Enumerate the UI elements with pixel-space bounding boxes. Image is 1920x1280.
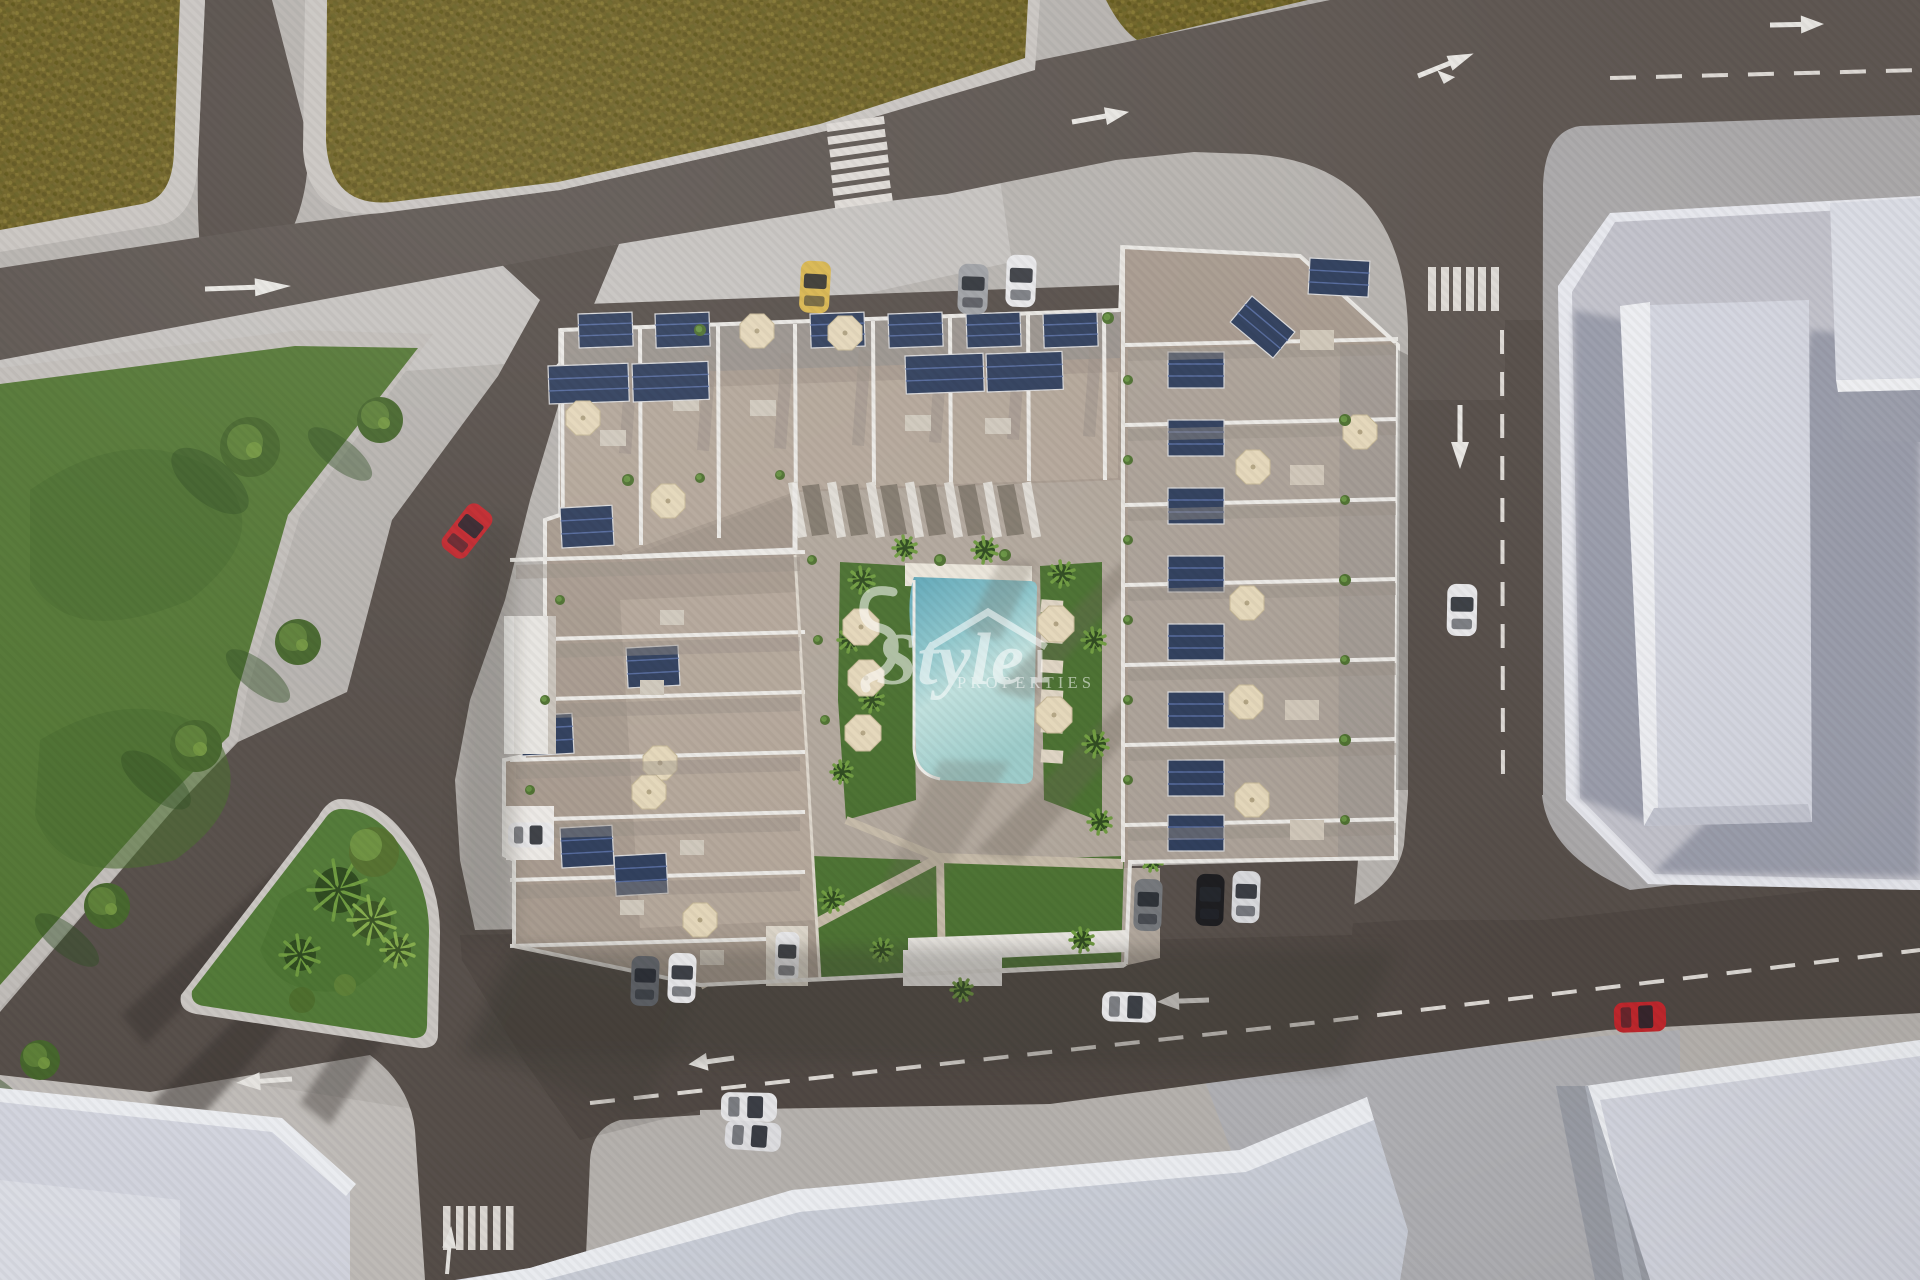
svg-text:PROPERTIES: PROPERTIES [957,673,1095,692]
